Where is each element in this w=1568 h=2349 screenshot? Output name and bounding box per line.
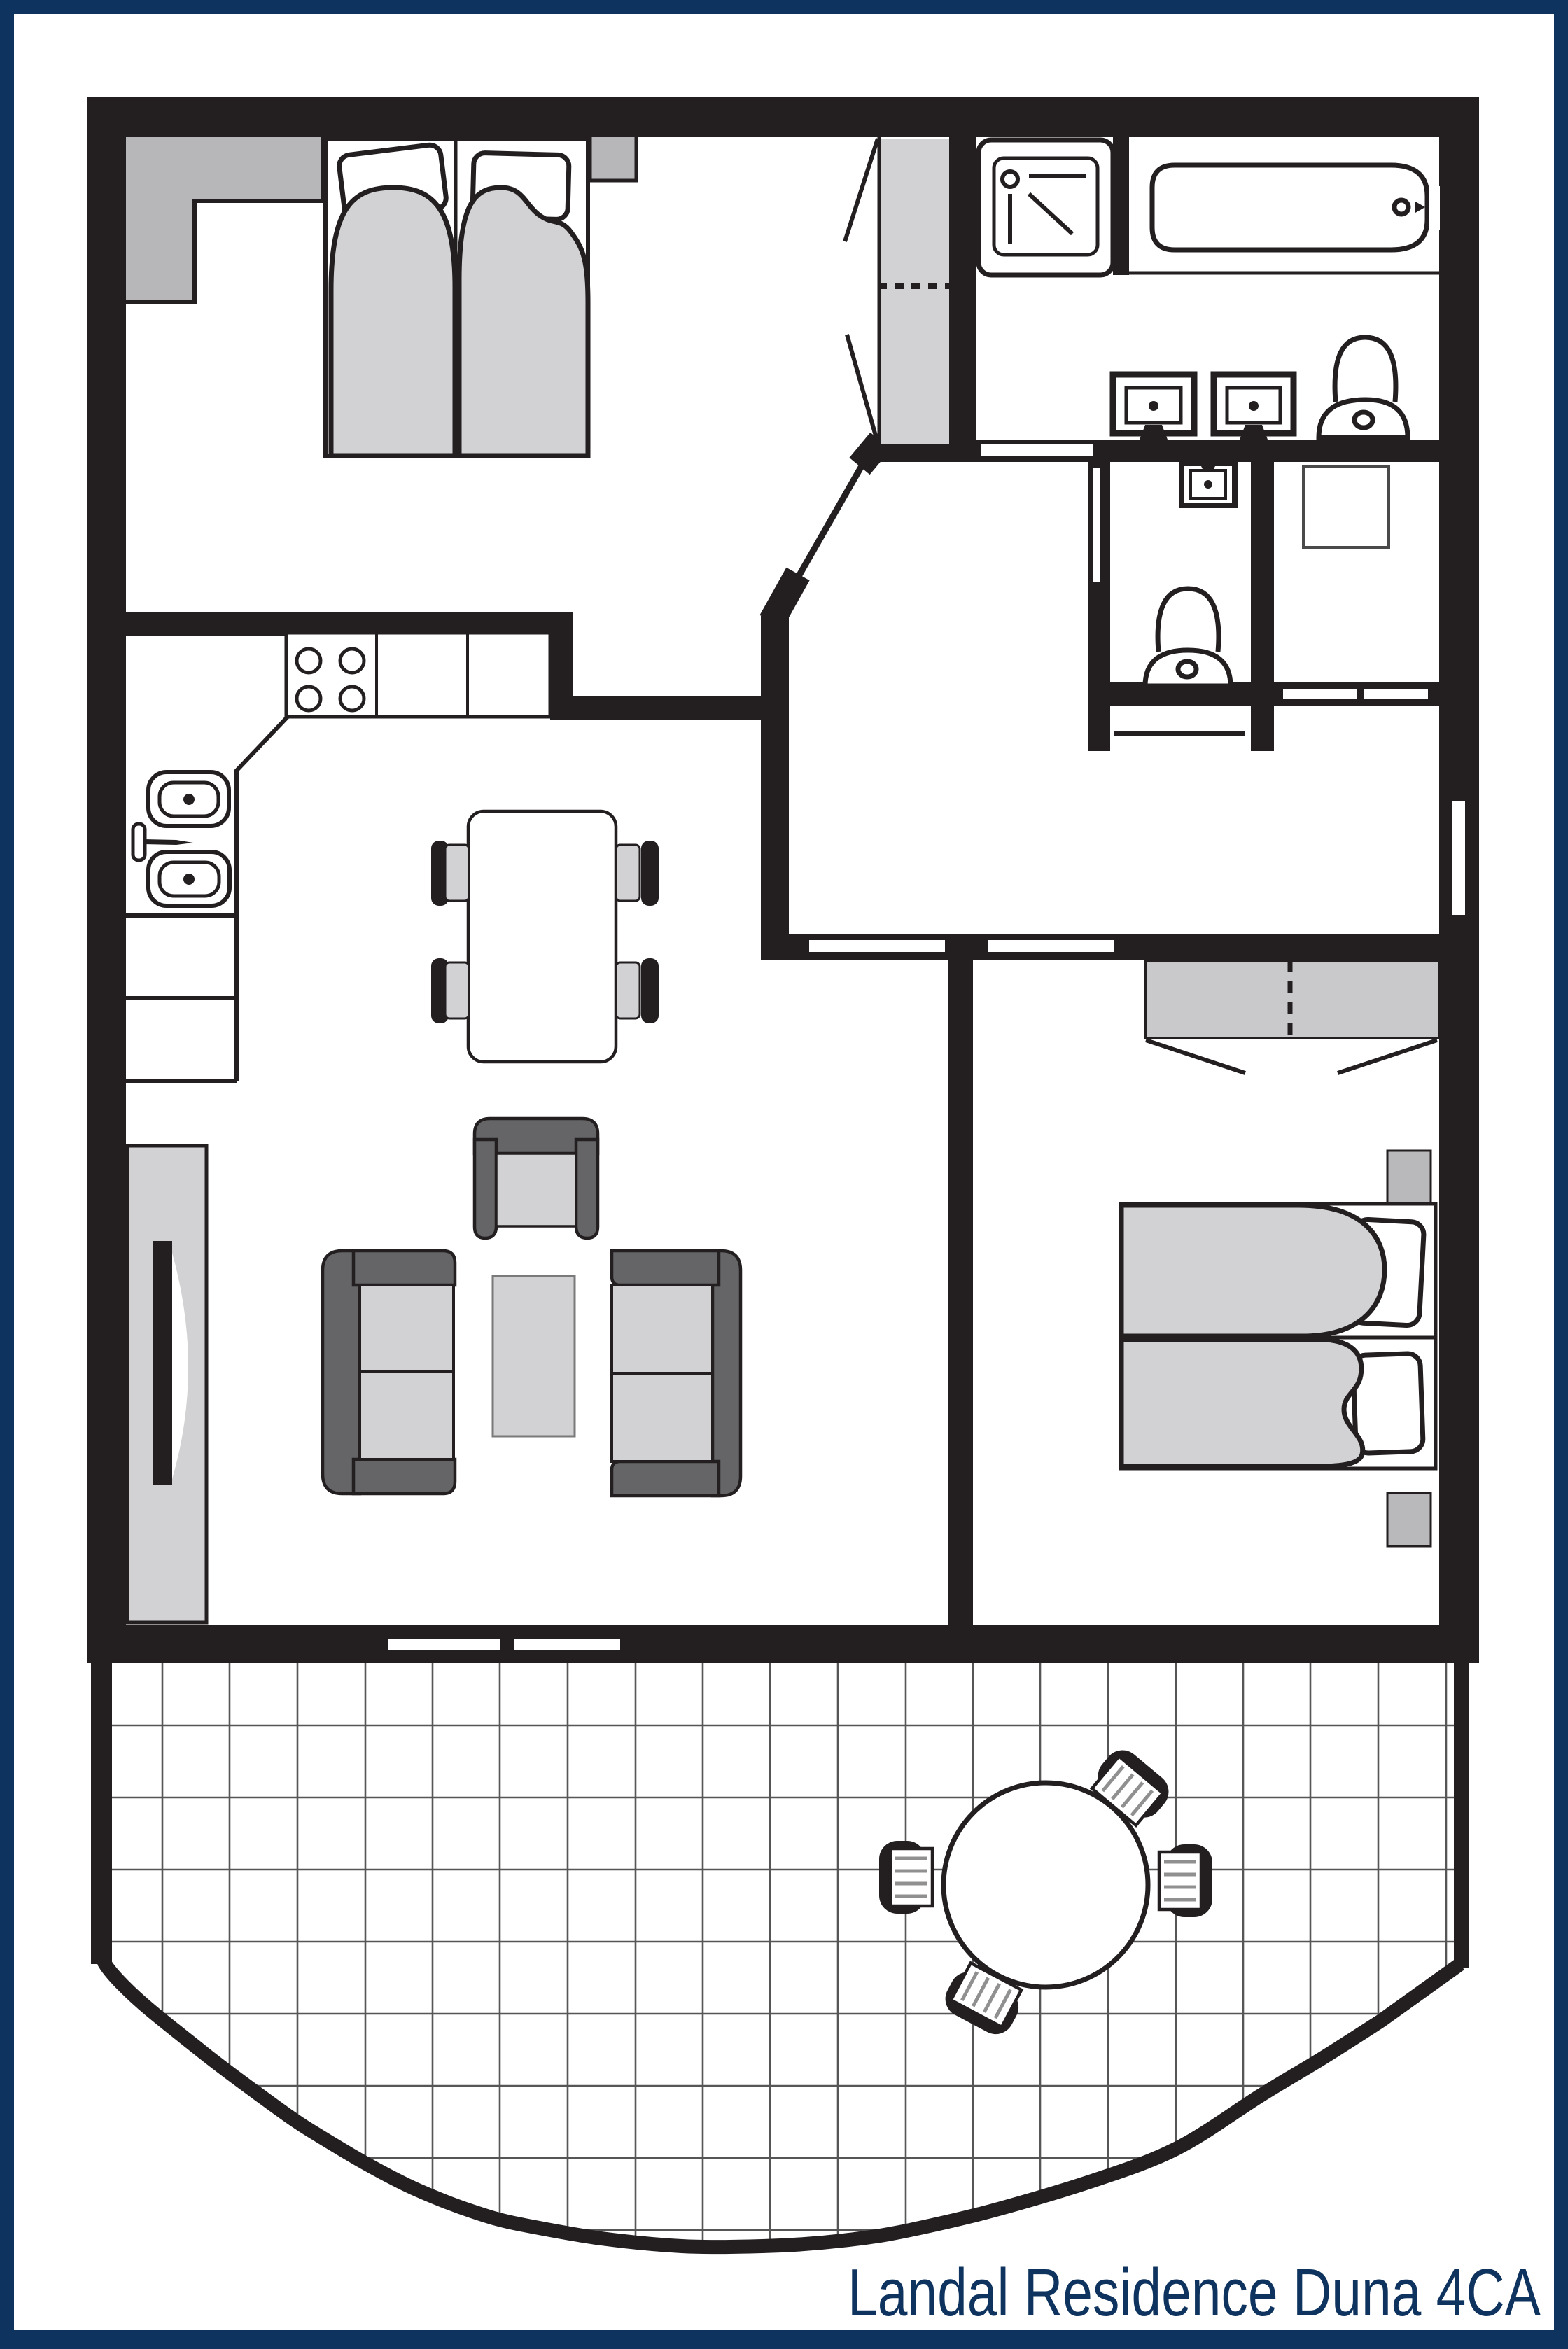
svg-text:Landal Residence Duna 4CA: Landal Residence Duna 4CA — [848, 2255, 1541, 2330]
